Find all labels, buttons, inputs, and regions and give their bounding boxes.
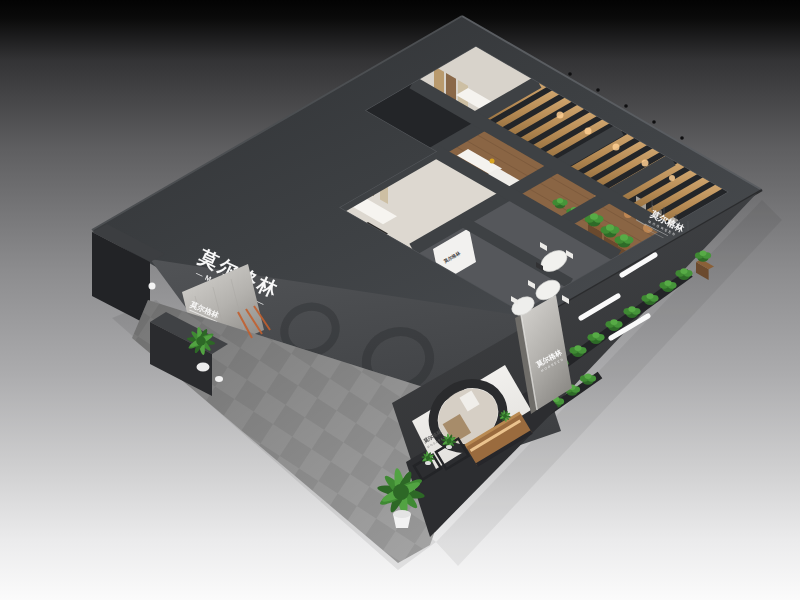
sphere-lamp xyxy=(149,283,156,290)
render-stage: 莫尔格林 xyxy=(0,0,800,600)
booth-render: 莫尔格林 xyxy=(0,0,800,600)
